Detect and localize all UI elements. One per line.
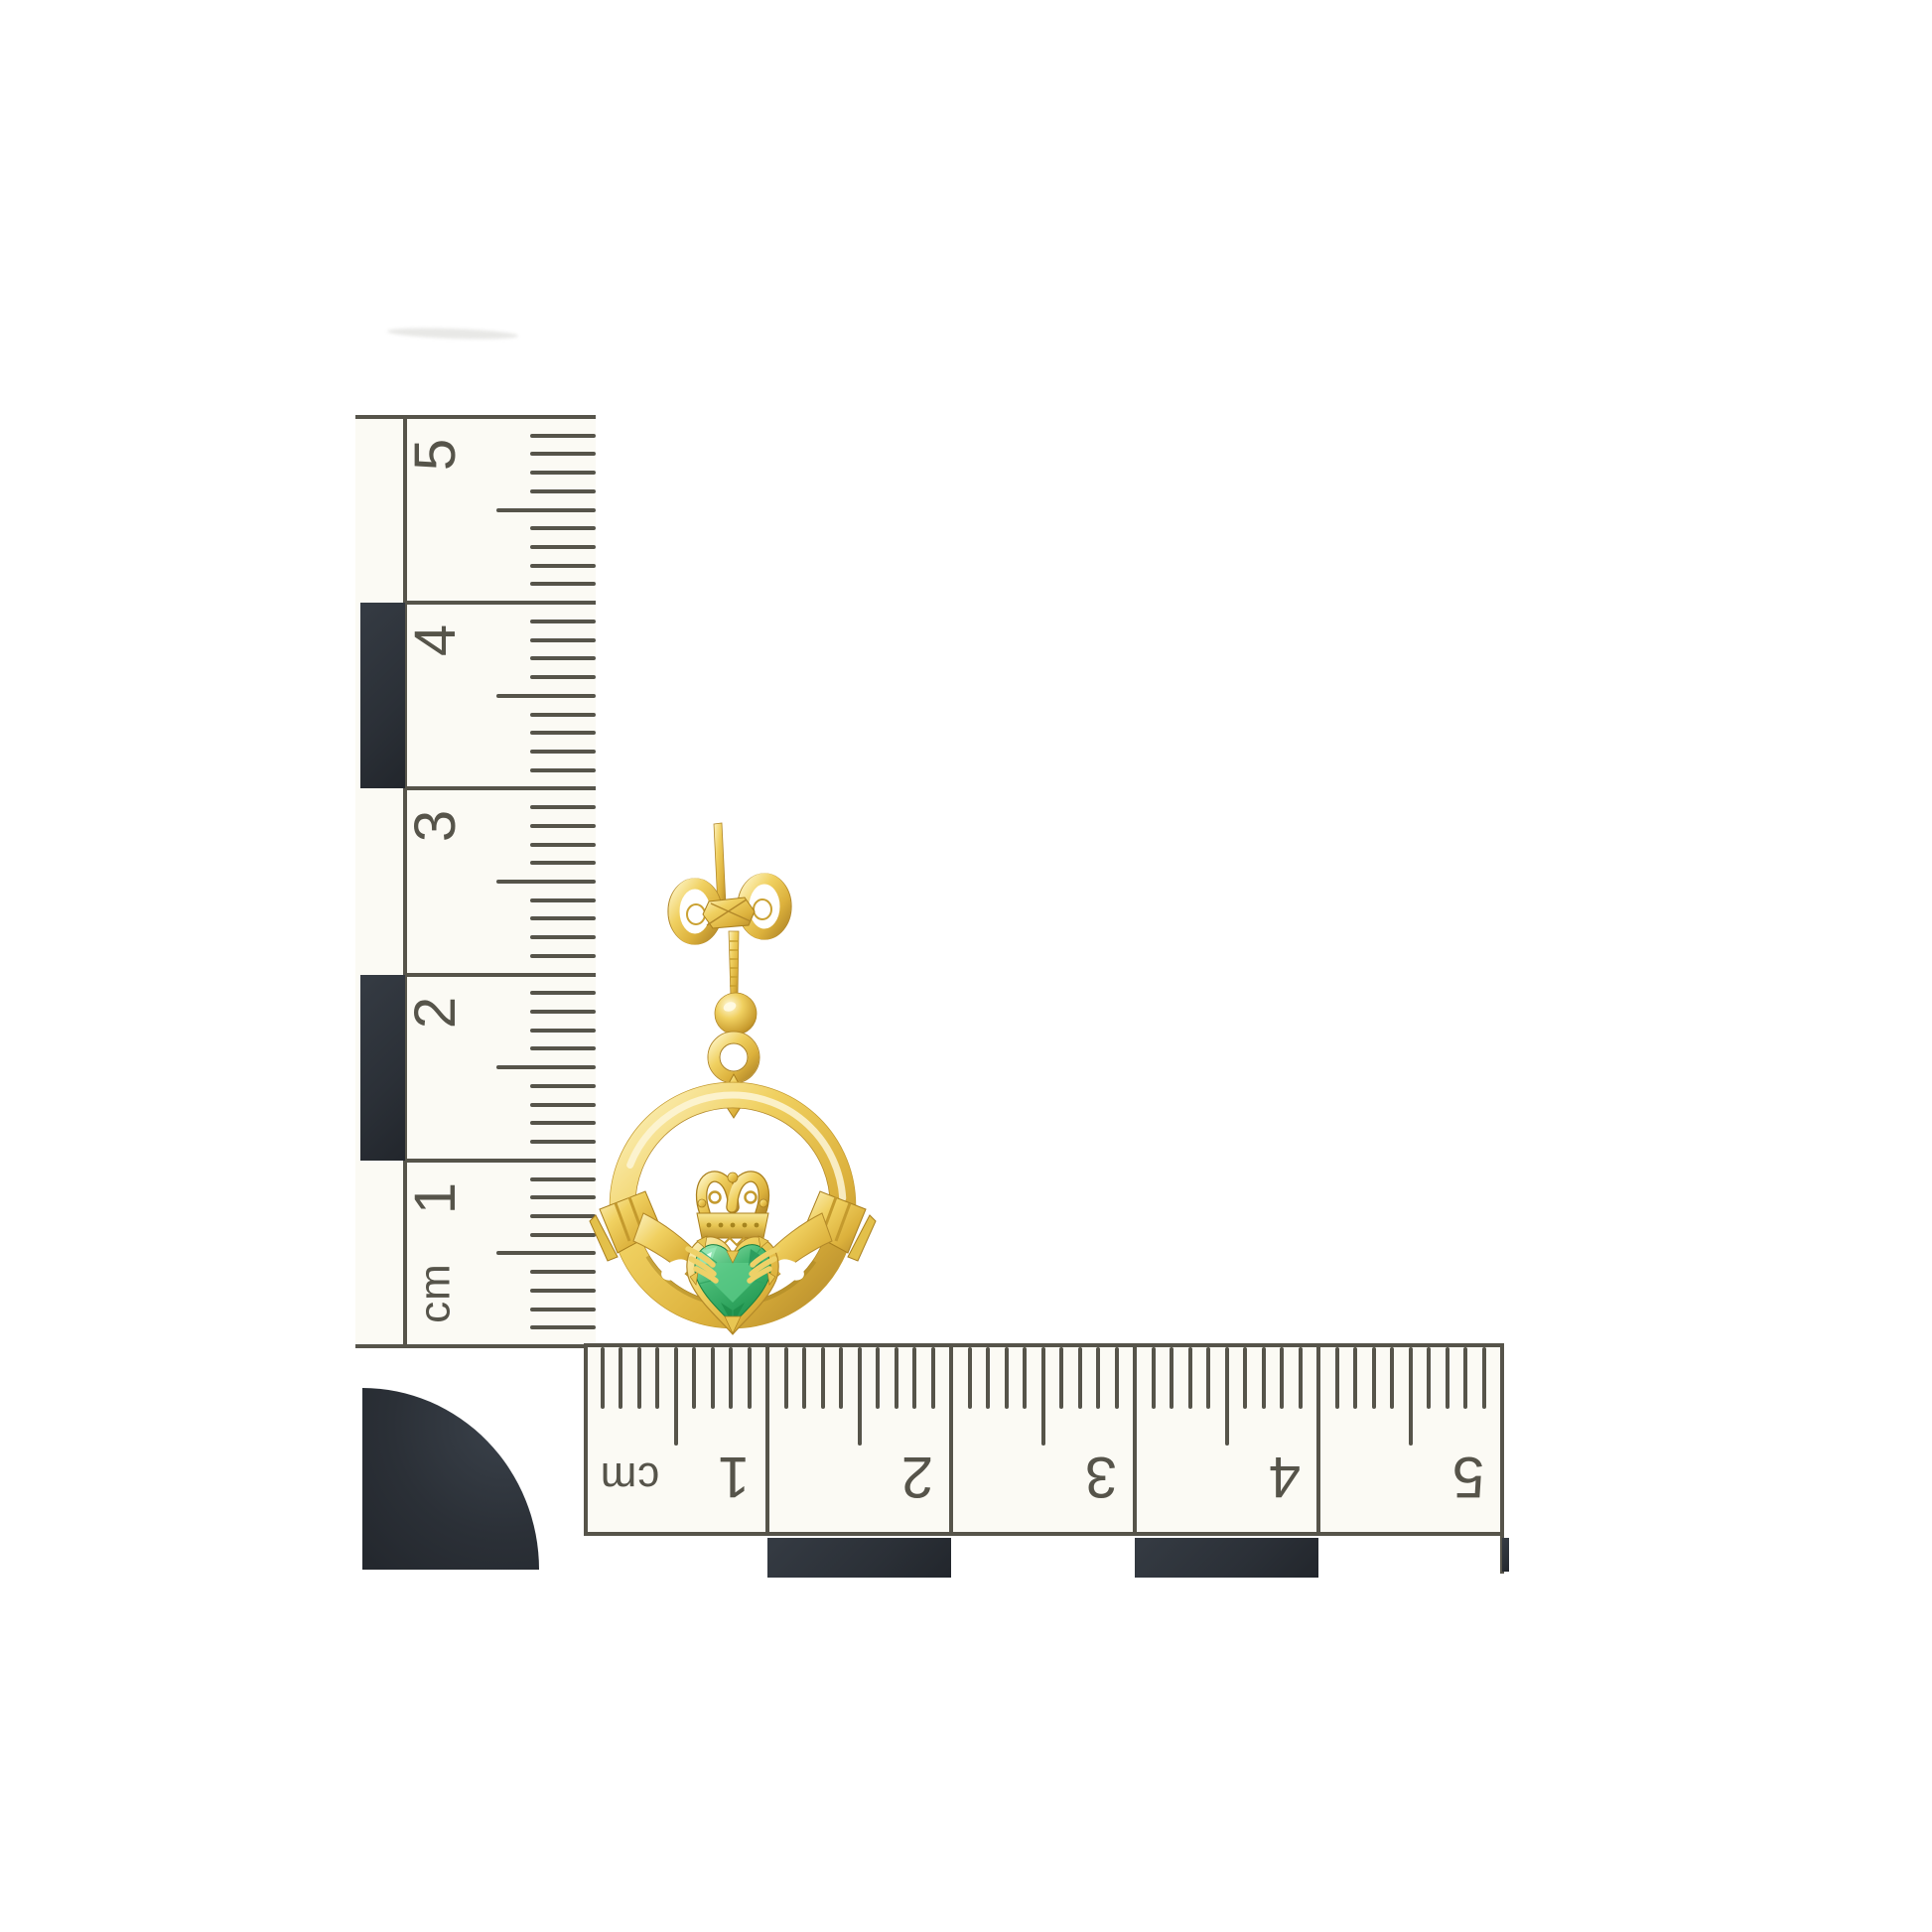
ruler-number: 2	[890, 1448, 945, 1507]
ruler-number: 5	[405, 427, 465, 483]
mm-tick	[1170, 1347, 1173, 1409]
mm-tick	[619, 1347, 622, 1409]
ruler-number: 1	[706, 1448, 761, 1507]
mm-tick	[530, 750, 596, 754]
mm-tick	[530, 1084, 596, 1088]
cm-line	[949, 1343, 953, 1536]
mm-tick	[1299, 1347, 1303, 1409]
dust-smudge	[387, 327, 518, 342]
mm-tick	[530, 805, 596, 809]
mm-tick	[1206, 1347, 1210, 1409]
mm-tick	[1115, 1347, 1119, 1409]
cm-line	[405, 973, 596, 977]
mm-tick	[1225, 1347, 1229, 1446]
gold-bead	[715, 993, 757, 1035]
ruler-unit-label: cm	[388, 1266, 483, 1321]
cm-block	[360, 603, 405, 788]
mm-tick	[1188, 1347, 1192, 1409]
mm-tick	[530, 1046, 596, 1050]
ruler-edge-line	[355, 415, 596, 419]
cm-block	[360, 975, 405, 1161]
mm-tick	[530, 638, 596, 642]
ruler-unit-label: cm	[592, 1451, 667, 1503]
mm-tick	[748, 1347, 752, 1409]
mm-tick	[496, 694, 596, 698]
mm-tick	[530, 1121, 596, 1125]
mm-tick	[1023, 1347, 1027, 1409]
mm-tick	[821, 1347, 825, 1409]
mm-tick	[530, 1029, 596, 1033]
ruler-number: 4	[1257, 1448, 1312, 1507]
mm-tick	[711, 1347, 715, 1409]
mm-tick	[530, 675, 596, 679]
mm-tick	[858, 1347, 862, 1446]
cm-block	[1135, 1538, 1318, 1578]
mm-tick	[1152, 1347, 1156, 1409]
mm-tick	[530, 1270, 596, 1274]
cm-line	[405, 1159, 596, 1163]
mm-tick	[530, 1140, 596, 1144]
horizontal-ruler: 12345cm	[584, 1343, 1503, 1536]
mm-tick	[1372, 1347, 1376, 1409]
mm-tick	[530, 656, 596, 660]
mm-tick	[912, 1347, 916, 1409]
claddagh-emerald-earring	[594, 814, 872, 1340]
ruler-number: 3	[405, 798, 465, 854]
corner-scale-marker	[362, 1388, 539, 1570]
mm-tick	[876, 1347, 880, 1409]
ruler-end-line	[584, 1343, 588, 1536]
mm-tick	[1353, 1347, 1357, 1409]
vertical-ruler: 54321cm	[355, 417, 596, 1346]
mm-tick	[530, 1103, 596, 1107]
mm-tick	[1262, 1347, 1266, 1409]
cm-line	[405, 601, 596, 605]
mm-tick	[692, 1347, 696, 1409]
mm-tick	[1096, 1347, 1100, 1409]
mm-tick	[729, 1347, 733, 1409]
mm-tick	[674, 1347, 678, 1446]
mm-tick	[530, 731, 596, 735]
mm-tick	[1335, 1347, 1339, 1409]
mm-tick	[530, 582, 596, 586]
mm-tick	[530, 954, 596, 958]
mm-tick	[839, 1347, 843, 1409]
mm-tick	[784, 1347, 788, 1409]
mm-tick	[931, 1347, 935, 1409]
crown	[697, 1173, 768, 1245]
mm-tick	[530, 434, 596, 438]
ruler-number: 4	[405, 613, 465, 668]
mm-tick	[530, 1214, 596, 1218]
ruler-number: 2	[405, 985, 465, 1040]
cm-block-stub	[1502, 1538, 1509, 1572]
mm-tick	[530, 861, 596, 865]
mm-tick	[530, 768, 596, 772]
ruler-number: 1	[405, 1171, 465, 1226]
cm-line	[1316, 1343, 1320, 1536]
threaded-post	[729, 931, 739, 997]
mm-tick	[530, 824, 596, 828]
mm-tick	[1059, 1347, 1063, 1409]
mm-tick	[1463, 1347, 1467, 1409]
mm-tick	[1280, 1347, 1284, 1409]
mm-tick	[530, 713, 596, 717]
mm-tick	[530, 564, 596, 568]
cm-line	[405, 786, 596, 790]
cm-line	[1133, 1343, 1137, 1536]
mm-tick	[530, 1325, 596, 1329]
mm-tick	[530, 898, 596, 902]
cm-block	[767, 1538, 951, 1578]
mm-tick	[530, 1289, 596, 1293]
mm-tick	[530, 935, 596, 939]
mm-tick	[530, 1177, 596, 1181]
mm-tick	[1005, 1347, 1009, 1409]
cm-line	[765, 1343, 769, 1536]
mm-tick	[530, 991, 596, 995]
mm-tick	[802, 1347, 806, 1409]
ruler-number: 3	[1073, 1448, 1129, 1507]
mm-tick	[1409, 1347, 1413, 1446]
mm-tick	[530, 843, 596, 847]
mm-tick	[530, 1195, 596, 1199]
ruler-edge-line	[584, 1532, 1503, 1536]
ruler-edge-line	[355, 1344, 596, 1348]
mm-tick	[655, 1347, 659, 1409]
mm-tick	[530, 526, 596, 530]
mm-tick	[601, 1347, 605, 1409]
mm-tick	[530, 1233, 596, 1237]
ruler-number: 5	[1441, 1448, 1496, 1507]
mm-tick	[530, 471, 596, 475]
mm-tick	[496, 880, 596, 884]
mm-tick	[496, 1065, 596, 1069]
mm-tick	[1427, 1347, 1431, 1409]
photo-canvas: 54321cm 12345cm	[0, 0, 1932, 1932]
mm-tick	[1078, 1347, 1082, 1409]
mm-tick	[530, 620, 596, 623]
mm-tick	[986, 1347, 990, 1409]
mm-tick	[530, 916, 596, 920]
mm-tick	[530, 452, 596, 456]
mm-tick	[1390, 1347, 1394, 1409]
mm-tick	[530, 489, 596, 493]
mm-tick	[496, 508, 596, 512]
mm-tick	[530, 1010, 596, 1014]
mm-tick	[1482, 1347, 1486, 1409]
mm-tick	[1243, 1347, 1247, 1409]
mm-tick	[530, 545, 596, 549]
mm-tick	[530, 1308, 596, 1311]
mm-tick	[968, 1347, 972, 1409]
mm-tick	[1041, 1347, 1045, 1446]
mm-tick	[895, 1347, 898, 1409]
mm-tick	[496, 1251, 596, 1255]
mm-tick	[637, 1347, 641, 1409]
mm-tick	[1446, 1347, 1449, 1409]
